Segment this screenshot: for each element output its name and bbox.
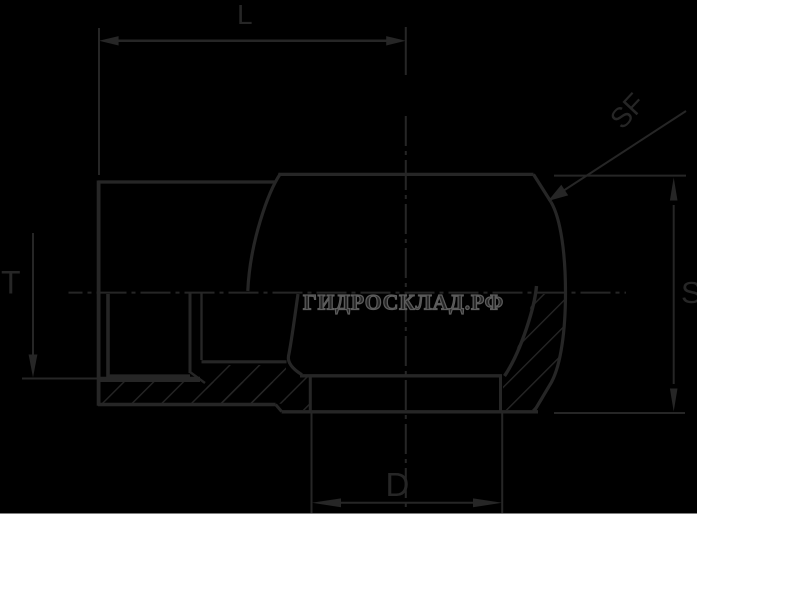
- svg-text:S: S: [681, 275, 702, 310]
- svg-text:ГИДРОСКЛАД.РФ: ГИДРОСКЛАД.РФ: [303, 290, 504, 315]
- svg-text:D: D: [386, 466, 410, 503]
- svg-text:T: T: [1, 265, 21, 301]
- svg-text:L: L: [237, 0, 253, 30]
